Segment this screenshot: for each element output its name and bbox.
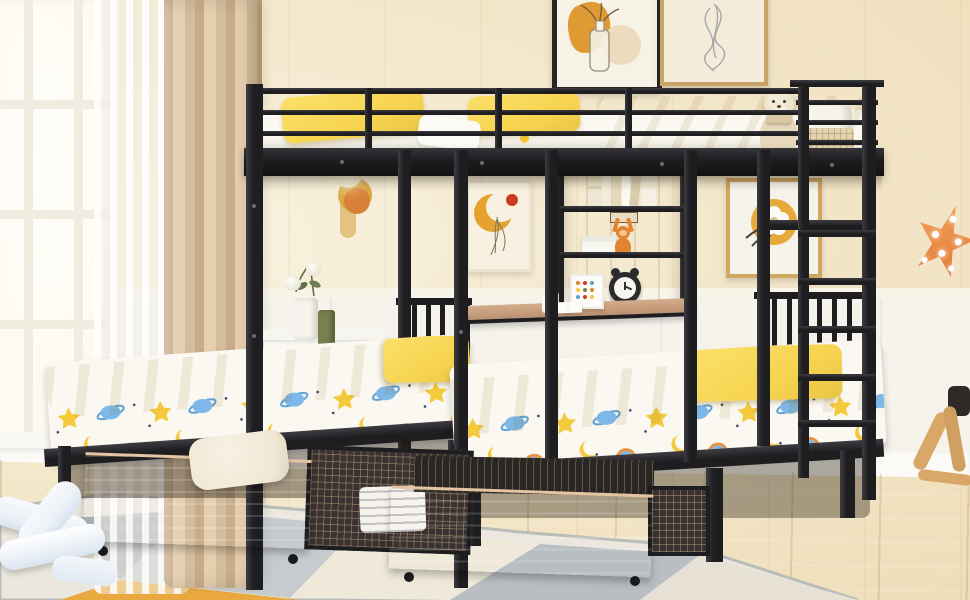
wall-art-vase-canvas: [557, 0, 647, 77]
guardrail-low-bar: [246, 131, 806, 136]
post-shelf-left: [545, 150, 558, 460]
right-bed-headboard-rail: [754, 292, 876, 299]
wall-art-crescent-moon: [466, 180, 532, 272]
bookshelf-shelf1: [560, 206, 684, 212]
guardrail-divider1: [365, 88, 372, 148]
post-shelf-right: [684, 150, 697, 462]
bedroom-photo: [0, 0, 970, 600]
ladder-rung3: [798, 326, 876, 333]
white-vase: [294, 298, 318, 340]
guardrail-top-bar: [246, 88, 806, 94]
ladder-rung5: [798, 420, 876, 427]
flower-blossom: [284, 276, 301, 291]
knot-arm4: [51, 554, 120, 588]
wall-art-vase: [552, 0, 662, 92]
right-drawer-mesh-side: [648, 486, 710, 556]
flower-blossom2: [306, 262, 321, 276]
bookshelf-shelf2: [560, 252, 684, 258]
ladder-rail-right: [862, 86, 876, 500]
right-bed-leg-rear: [840, 450, 855, 518]
rocking-horse: [918, 386, 970, 504]
storage-drawer-right-front: [389, 485, 654, 577]
open-book: [554, 302, 582, 314]
guardrail-mid-bar: [246, 110, 806, 115]
guardrail-divider2: [495, 88, 502, 148]
deck-wall-shadow: [246, 176, 882, 192]
drawer-wheel3: [404, 572, 414, 582]
rocking-horse-runner: [918, 469, 970, 486]
wall-art-line-figure-canvas: [664, 0, 756, 74]
plush-knot-pillows: [0, 470, 130, 590]
upper-deck-beam: [244, 148, 884, 176]
wall-art-line-figure: [660, 0, 768, 86]
drawer-wheel4: [630, 576, 640, 586]
ladder-rung4: [798, 374, 876, 381]
post-right-bed-head: [757, 150, 770, 446]
teddy-scarf: [766, 114, 792, 123]
guardrail-divider3: [625, 88, 632, 148]
right-section-mid-rail: [757, 220, 875, 230]
ladder-rung2: [798, 278, 876, 285]
drawer-wheel2: [288, 554, 298, 564]
wall-art-crescent-canvas: [469, 183, 523, 263]
alarm-clock: [608, 270, 642, 304]
ladder-rung1: [798, 230, 876, 237]
